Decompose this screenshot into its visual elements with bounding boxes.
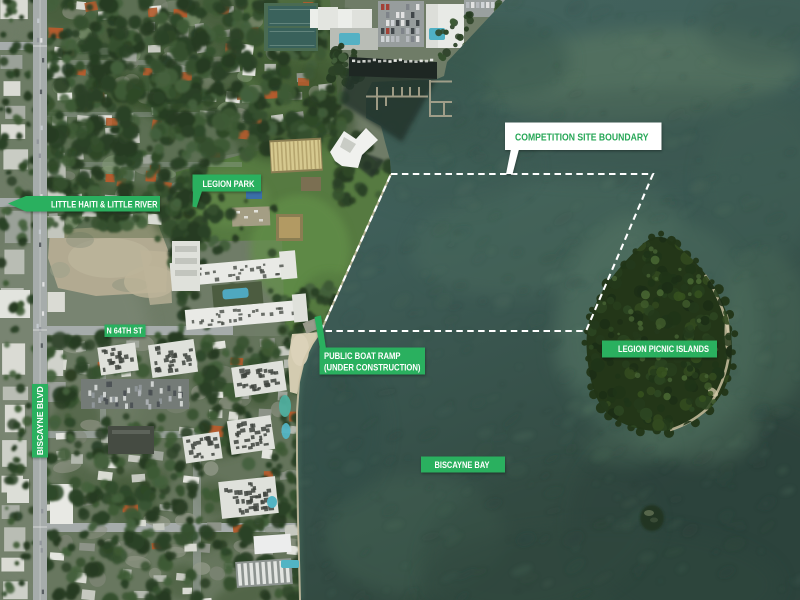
svg-text:BISCAYNE BLVD: BISCAYNE BLVD	[35, 386, 45, 455]
svg-text:LEGION PARK: LEGION PARK	[203, 179, 255, 190]
svg-text:LEGION PICNIC ISLANDS: LEGION PICNIC ISLANDS	[618, 344, 709, 355]
svg-text:BISCAYNE BAY: BISCAYNE BAY	[435, 460, 490, 471]
svg-text:PUBLIC BOAT RAMP: PUBLIC BOAT RAMP	[324, 351, 401, 361]
svg-text:LITTLE HAITI & LITTLE RIVER: LITTLE HAITI & LITTLE RIVER	[51, 200, 158, 210]
svg-text:N 64TH ST: N 64TH ST	[107, 327, 143, 336]
svg-text:(UNDER CONSTRUCTION): (UNDER CONSTRUCTION)	[324, 362, 421, 372]
svg-text:COMPETITION SITE BOUNDARY: COMPETITION SITE BOUNDARY	[515, 132, 649, 143]
